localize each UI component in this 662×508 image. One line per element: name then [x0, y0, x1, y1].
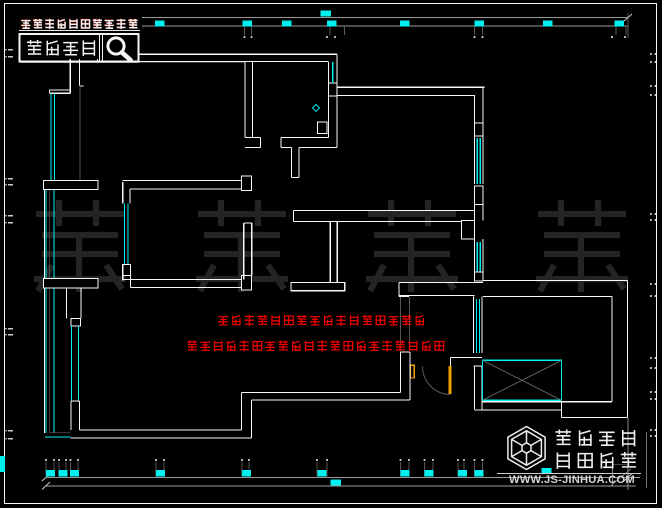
svg-text:WWW.JS-JINHUA.COM: WWW.JS-JINHUA.COM [509, 474, 635, 486]
